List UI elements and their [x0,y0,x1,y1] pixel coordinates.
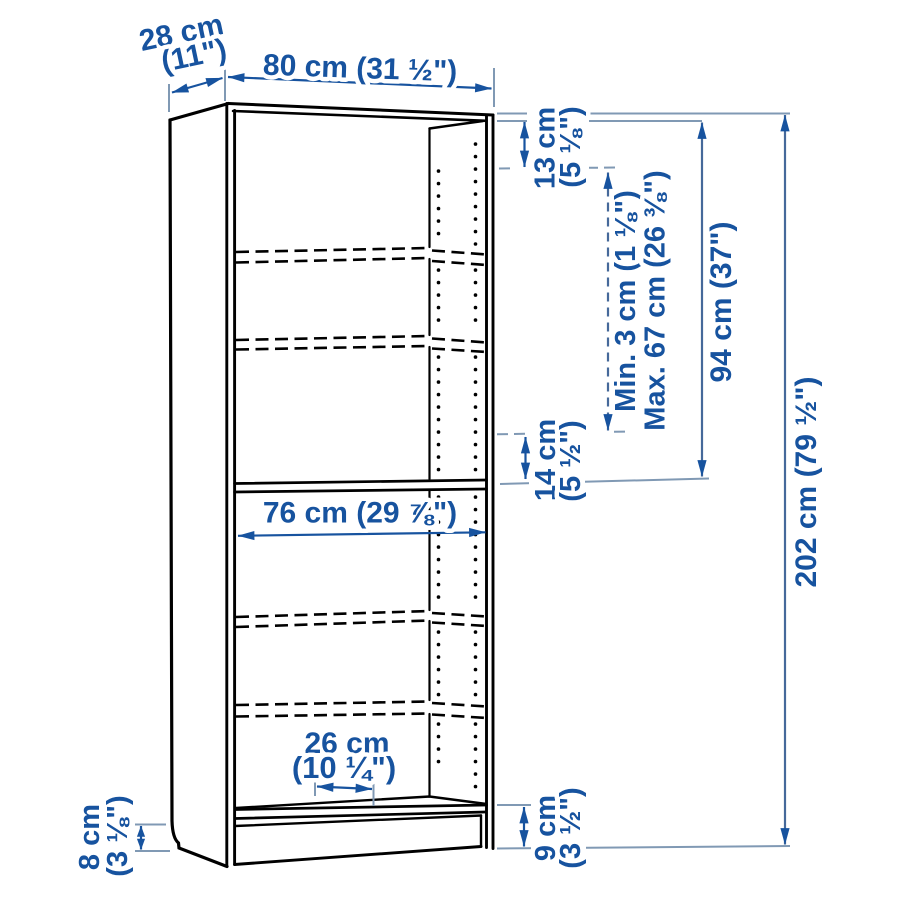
svg-text:(5 ⅛"): (5 ⅛") [555,106,587,187]
svg-text:(10 ¼"): (10 ¼") [292,750,396,785]
svg-text:Min. 3 cm (1 ⅛"): Min. 3 cm (1 ⅛") [610,190,642,412]
svg-text:(5 ½"): (5 ½") [555,420,587,501]
svg-text:76 cm (29 ⅞"): 76 cm (29 ⅞") [263,497,457,530]
svg-text:202 cm (79 ½"): 202 cm (79 ½") [790,376,823,587]
svg-text:Max. 67 cm (26 ⅜"): Max. 67 cm (26 ⅜") [640,170,672,430]
svg-text:(3 ½"): (3 ½") [555,787,587,868]
svg-text:(3 ⅛"): (3 ⅛") [102,795,134,876]
svg-text:80 cm (31 ½"): 80 cm (31 ½") [262,49,457,89]
svg-text:94 cm (37"): 94 cm (37") [705,222,738,383]
